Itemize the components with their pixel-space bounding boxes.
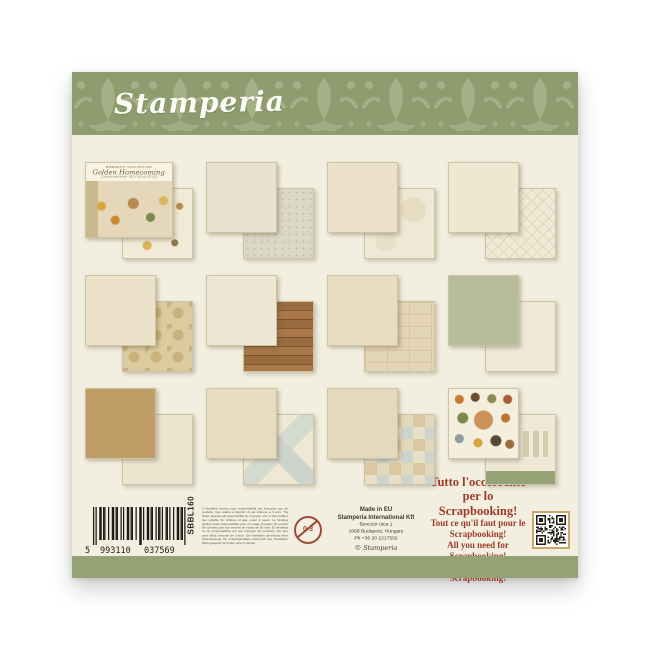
paper-sheet-front [327,162,398,233]
paper-thumb-four-cards [447,274,568,378]
product-photo: Stamperia ROMANTIC COLLECTION Golden Hom… [72,72,578,578]
paper-sheet-front [206,388,277,459]
bottom-green-strip [72,556,578,578]
stamperia-logo: Stamperia [114,84,285,120]
paper-thumb-shelf [447,161,568,265]
barcode: 5 993110 037569 [84,505,186,555]
paper-thumb-tags [326,387,447,491]
copyright-signature: © Stamperia [328,544,424,552]
paper-sheet-front [327,275,398,346]
manufacturer-city: 1068 Budapest, Hungary [333,529,419,535]
paper-thumb-cutout-elements [447,387,568,491]
slogan-french: Tout ce qu'il faut pour le Scrapbooking! [430,518,526,540]
manufacturer-phone: Ph +36 20 2217502 [333,536,419,542]
manufacturer-street: Benczúr utca 1 [333,522,419,528]
paper-thumb-cover: ROMANTIC COLLECTION Golden Homecoming 12… [84,161,205,265]
age-warning-label: 0-3 [303,526,313,533]
brand-banner: Stamperia [72,72,578,135]
footer-info-row: 5 993110 037569 SBBL160 Il Venditore dec… [72,503,578,556]
paper-sheet-front [85,275,156,346]
sku-code-vertical: SBBL160 [187,525,196,535]
manufacturer-info: Made in EU Stamperia International Kft B… [328,507,424,552]
paper-thumb-boots [326,161,447,265]
paper-thumb-window [205,274,326,378]
barcode-block: 5 993110 037569 SBBL160 [84,505,196,555]
cover-subtitle: 12 double faced sheets · 30.5 × 30.5 cm … [101,176,157,179]
paper-thumb-frames [84,387,205,491]
paper-thumb-interior [205,161,326,265]
barcode-digits-right: 037569 [144,546,175,555]
paper-sheet-front [448,275,519,346]
paper-sheet-front [206,162,277,233]
paper-thumb-birdcage [84,274,205,378]
paper-sheet-front [85,388,156,459]
cover-collage-art [86,181,172,237]
made-in-eu: Made in EU [328,507,424,515]
paper-thumb-trunk [326,274,447,378]
age-warning-icon: 0-3 [294,516,322,544]
qr-code [532,511,570,549]
paper-sheet-front [206,275,277,346]
stamperia-logo-text: Stamperia [114,84,285,120]
safety-warning-text: Il Venditore declina ogni responsabilità… [202,507,288,553]
barcode-prefix-digit: 5 [85,546,90,555]
paper-sheet-front [448,162,519,233]
paper-sheet-front [448,388,519,459]
paper-sheet-front-cover: ROMANTIC COLLECTION Golden Homecoming 12… [85,162,173,238]
barcode-digits-left: 993110 [100,546,131,555]
paper-grid: ROMANTIC COLLECTION Golden Homecoming 12… [72,135,578,503]
paper-thumb-labels [205,387,326,491]
paper-sheet-front [327,388,398,459]
